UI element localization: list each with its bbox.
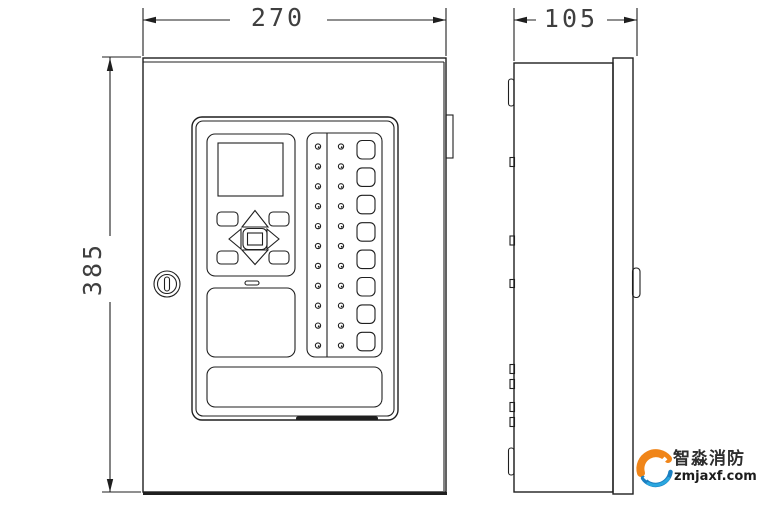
- key-lock-icon: [154, 271, 180, 297]
- zone-button: [357, 168, 375, 187]
- dimension-drawing: 270 105 385 智淼消防 zmjaxf.com: [0, 0, 760, 514]
- zone-led-dot: [318, 286, 320, 288]
- zone-led-icon: [338, 224, 343, 229]
- zone-led-icon: [338, 303, 343, 308]
- zone-led-dot: [341, 206, 343, 208]
- lcd-display: [218, 143, 283, 196]
- zone-led-dot: [341, 266, 343, 268]
- zone-leds: [315, 144, 343, 348]
- arrowhead-up-icon: [107, 58, 113, 71]
- zone-led-icon: [315, 303, 320, 308]
- zone-led-icon: [315, 323, 320, 328]
- zone-led-icon: [338, 263, 343, 268]
- zone-led-dot: [318, 226, 320, 228]
- dimension-height-value: 385: [80, 229, 106, 309]
- zone-led-icon: [315, 184, 320, 189]
- zone-button: [357, 223, 375, 242]
- display-section: [207, 134, 295, 276]
- zone-section: [307, 133, 382, 357]
- cabinet-body: [514, 63, 613, 492]
- brand-logo-icon: [640, 453, 670, 485]
- zone-led-dot: [318, 266, 320, 268]
- zone-led-dot: [341, 246, 343, 248]
- zone-led-icon: [315, 343, 320, 348]
- zone-led-icon: [315, 144, 320, 149]
- drawing-linework: [0, 0, 760, 514]
- zone-button: [357, 305, 375, 324]
- blank-compartment-door: [207, 288, 295, 357]
- zone-led-icon: [338, 283, 343, 288]
- zone-led-dot: [318, 166, 320, 168]
- arrow-down-button: [242, 250, 268, 265]
- function-button-bottom-right: [269, 251, 289, 264]
- keyhole-slot: [165, 277, 170, 291]
- arrowhead-right-icon: [624, 17, 637, 23]
- zone-led-icon: [315, 283, 320, 288]
- function-button-top-right: [269, 212, 289, 226]
- arrowhead-left-icon: [514, 17, 527, 23]
- zone-led-dot: [341, 306, 343, 308]
- grip-slot: [296, 417, 378, 421]
- zone-led-dot: [341, 226, 343, 228]
- function-button-top-left: [217, 212, 238, 226]
- zone-led-dot: [318, 206, 320, 208]
- zone-led-dot: [341, 286, 343, 288]
- dimension-height: [102, 57, 141, 492]
- zone-led-icon: [315, 204, 320, 209]
- dimension-depth-value: 105: [533, 6, 609, 32]
- zone-led-icon: [315, 224, 320, 229]
- zone-buttons: [357, 141, 375, 351]
- zone-led-icon: [338, 323, 343, 328]
- zone-led-icon: [338, 243, 343, 248]
- side-latch: [446, 115, 453, 158]
- zone-led-icon: [338, 184, 343, 189]
- zone-led-icon: [315, 243, 320, 248]
- zone-led-icon: [338, 204, 343, 209]
- arrow-left-button: [229, 229, 241, 249]
- front-door-profile: [613, 58, 633, 494]
- zone-led-icon: [338, 343, 343, 348]
- zone-led-dot: [318, 306, 320, 308]
- mounting-bracket-top: [509, 79, 515, 106]
- zone-led-dot: [341, 146, 343, 148]
- cabinet-outline: [143, 58, 446, 492]
- zone-led-dot: [341, 166, 343, 168]
- label-strip: [207, 367, 382, 407]
- zone-button: [357, 278, 375, 297]
- ok-button: [243, 229, 267, 250]
- zone-led-icon: [338, 164, 343, 169]
- front-view: [143, 58, 453, 494]
- zone-led-icon: [315, 263, 320, 268]
- zone-led-dot: [318, 186, 320, 188]
- arrow-right-button: [267, 229, 279, 249]
- zone-led-icon: [338, 144, 343, 149]
- dimension-width-value: 270: [240, 5, 316, 31]
- arrowhead-right-icon: [433, 17, 446, 23]
- zone-led-icon: [315, 164, 320, 169]
- nav-keypad: [217, 211, 289, 265]
- zone-led-dot: [341, 186, 343, 188]
- side-view: [509, 58, 641, 494]
- zone-button: [357, 332, 375, 351]
- zone-button: [357, 195, 375, 214]
- function-button-bottom-left: [217, 251, 238, 264]
- ok-button-inner: [248, 233, 263, 245]
- zone-led-dot: [318, 325, 320, 327]
- arrowhead-down-icon: [107, 479, 113, 492]
- brand-name: 智淼消防: [673, 450, 753, 469]
- brand-website: zmjaxf.com: [674, 469, 754, 484]
- zone-button: [357, 250, 375, 269]
- arrow-up-button: [242, 211, 268, 228]
- zone-led-dot: [341, 345, 343, 347]
- zone-led-dot: [341, 325, 343, 327]
- zone-led-dot: [318, 345, 320, 347]
- zone-led-dot: [318, 246, 320, 248]
- mounting-bracket-bottom: [509, 448, 515, 475]
- logo-white-slash: [645, 458, 666, 479]
- zone-button: [357, 141, 375, 160]
- small-slot: [245, 281, 259, 285]
- zone-led-dot: [318, 146, 320, 148]
- arrowhead-left-icon: [143, 17, 156, 23]
- control-panel: [192, 117, 398, 421]
